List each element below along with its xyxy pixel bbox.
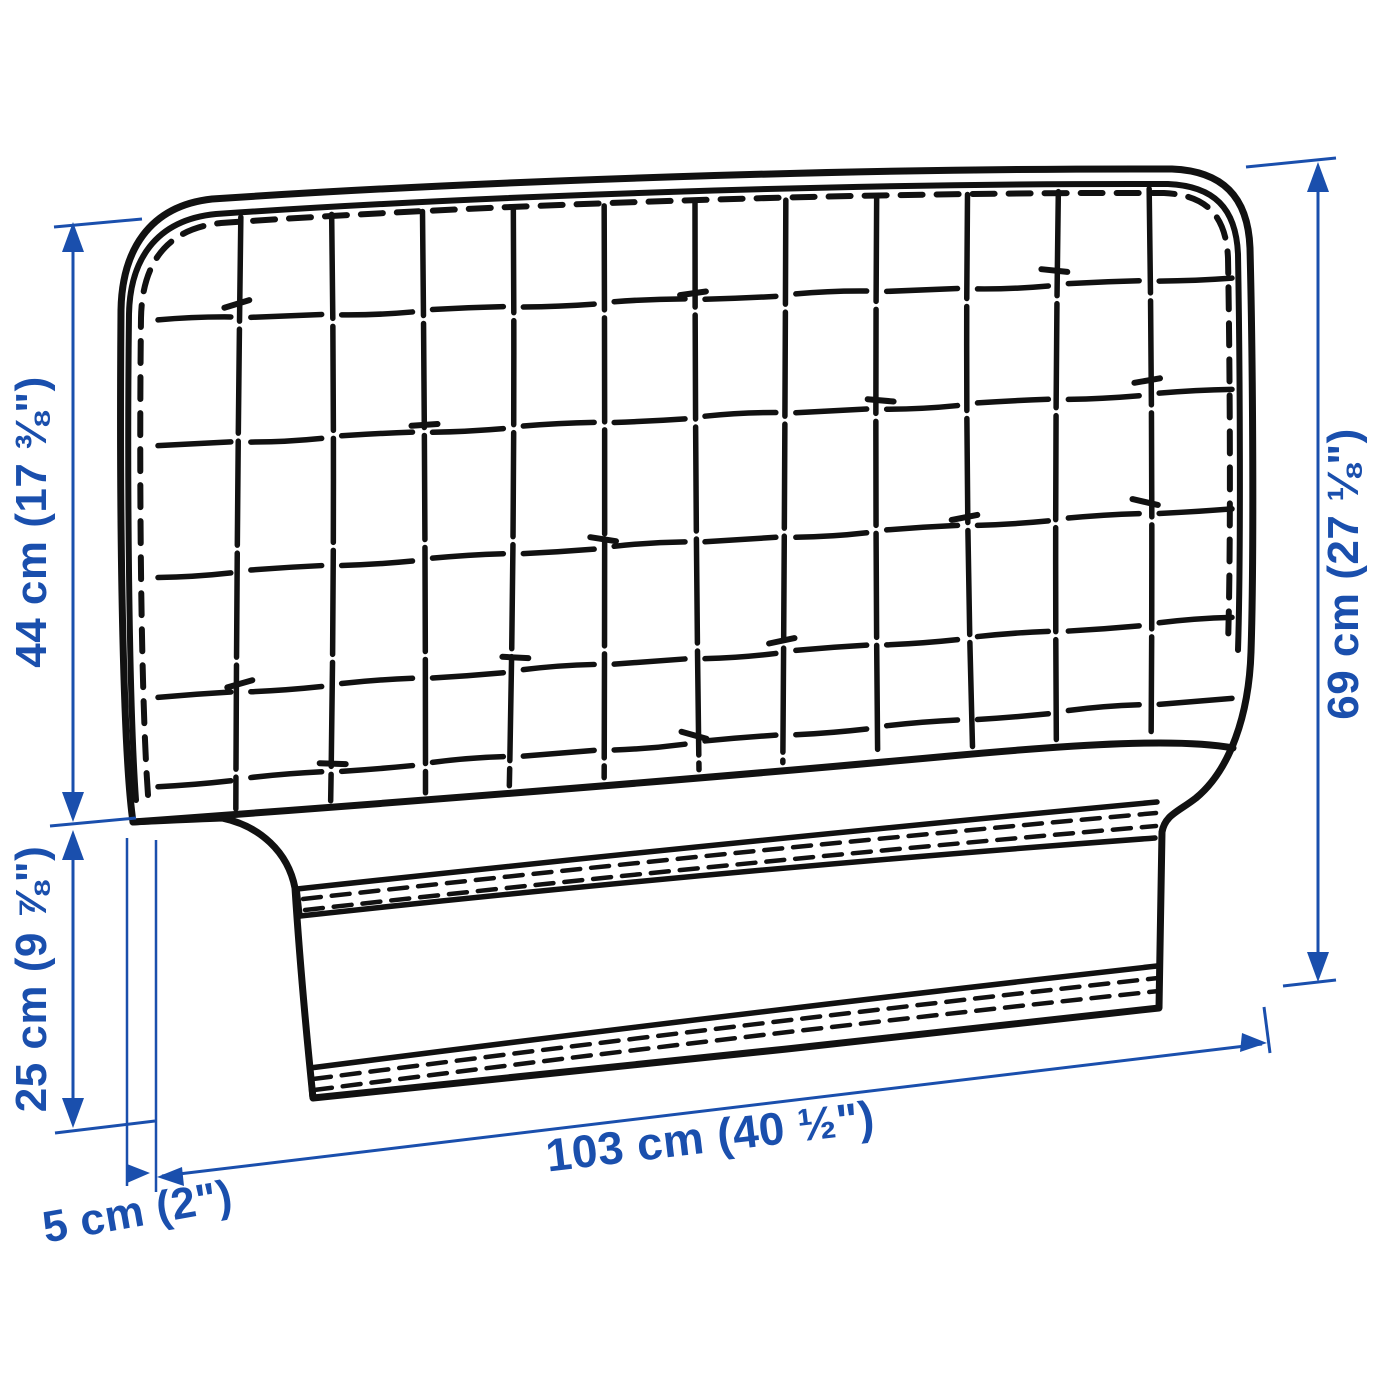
tick-line xyxy=(1264,1007,1270,1053)
quilt-grid-line xyxy=(887,640,958,645)
quilt-grid-line xyxy=(1068,514,1139,518)
quilt-grid-line xyxy=(978,631,1049,636)
tuft-mark xyxy=(224,300,249,308)
dimension-label-upper-left-height: 44 cm (17 ⅜") xyxy=(7,376,56,668)
arrow-head-right xyxy=(127,1164,150,1183)
quilt-grid-line xyxy=(342,432,413,436)
quilt-grid xyxy=(158,189,1232,809)
quilt-grid-line xyxy=(1159,509,1232,514)
rail-left-cap xyxy=(297,889,300,916)
quilt-grid-line xyxy=(978,714,1049,720)
rail-left-cap xyxy=(310,1068,312,1096)
headboard-dimension-diagram: 44 cm (17 ⅜") 25 cm (9 ⅞") 69 cm (27 ⅛")… xyxy=(0,0,1400,1400)
upper-stitched-rail xyxy=(297,802,1157,916)
quilt-grid-line xyxy=(251,772,322,778)
quilt-grid-line xyxy=(1149,189,1152,732)
rail-stitch-row xyxy=(305,826,1156,910)
quilt-grid-line xyxy=(604,206,605,778)
quilt-grid-line xyxy=(705,735,776,741)
tick-line xyxy=(55,1121,155,1133)
rail-stitch-row xyxy=(314,991,1159,1090)
tick-line xyxy=(1283,980,1336,986)
quilt-grid-line xyxy=(978,399,1049,403)
quilt-grid-line xyxy=(1068,396,1139,400)
quilt-grid-line xyxy=(433,554,504,558)
quilt-grid-line xyxy=(509,209,513,786)
headboard-illustration: 44 cm (17 ⅜") 25 cm (9 ⅞") 69 cm (27 ⅛")… xyxy=(0,0,1400,1400)
tick-line xyxy=(1246,158,1336,167)
lower-stitched-rail xyxy=(310,966,1159,1096)
headboard-silhouette xyxy=(121,169,1253,1098)
quilt-grid-line xyxy=(695,203,699,770)
arrow-head-right xyxy=(1240,1033,1267,1052)
arrow-head-down xyxy=(62,792,84,822)
tuft-mark xyxy=(502,657,528,658)
dimension-label-width: 103 cm (40 ½") xyxy=(543,1091,877,1182)
tuft-marks xyxy=(224,269,1160,764)
quilt-grid-line xyxy=(796,729,867,735)
quilt-grid-line xyxy=(796,645,867,650)
tuft-mark xyxy=(682,732,707,739)
dimension-25cm: 25 cm (9 ⅞") xyxy=(7,830,155,1133)
quilt-grid-line xyxy=(433,757,504,763)
quilt-grid-line xyxy=(251,566,322,570)
quilt-grid-line xyxy=(614,419,685,423)
arrow-head-down xyxy=(62,1098,84,1128)
tuft-mark xyxy=(680,292,706,296)
dimension-label-right-height: 69 cm (27 ⅛") xyxy=(1319,428,1368,720)
quilt-grid-line xyxy=(433,307,504,310)
arrow-head-up xyxy=(62,830,84,860)
quilt-grid-line xyxy=(433,429,504,433)
quilt-grid-line xyxy=(614,299,685,302)
quilt-grid-line xyxy=(331,214,334,800)
quilt-grid-line xyxy=(876,197,878,754)
quilt-grid-line xyxy=(783,200,786,762)
quilt-grid-line xyxy=(523,304,594,307)
quilt-grid-line xyxy=(705,413,776,417)
quilt-grid-line xyxy=(705,653,776,658)
arrow-head-up xyxy=(1307,162,1329,192)
tick-line xyxy=(54,219,142,227)
tuft-mark xyxy=(868,399,894,401)
quilt-grid-line xyxy=(1068,281,1139,284)
quilt-grid-line xyxy=(158,317,231,320)
headboard-outline xyxy=(121,169,1253,1098)
tick-line xyxy=(50,818,136,826)
tuft-mark xyxy=(769,638,794,643)
tuft-mark xyxy=(227,680,252,687)
tuft-mark xyxy=(412,424,438,426)
quilt-grid-line xyxy=(342,678,413,683)
quilt-grid-line xyxy=(887,289,958,292)
quilt-grid-line xyxy=(523,549,594,553)
tuft-mark xyxy=(1041,269,1067,272)
quilt-grid-line xyxy=(887,525,958,529)
quilt-grid-line xyxy=(523,750,594,756)
dimension-5cm: 5 cm (2") xyxy=(39,838,236,1252)
quilt-grid-line xyxy=(251,314,322,317)
tuft-mark xyxy=(320,763,346,764)
rail-stitch-row xyxy=(313,978,1158,1079)
quilt-grid-line xyxy=(1159,698,1232,704)
quilt-grid-line xyxy=(1159,617,1232,622)
quilt-grid-line xyxy=(978,286,1049,289)
quilt-grid-line xyxy=(967,195,973,747)
rail-stitch-row xyxy=(303,813,1156,899)
quilt-grid-line xyxy=(158,442,231,446)
quilt-grid-line xyxy=(158,692,231,697)
quilt-grid-line xyxy=(978,521,1049,525)
quilt-grid-line xyxy=(614,542,685,546)
dimension-label-depth: 5 cm (2") xyxy=(39,1171,236,1253)
quilt-grid-line xyxy=(158,573,231,578)
quilt-grid-line xyxy=(523,664,594,669)
tuft-mark xyxy=(590,537,616,541)
arrow-head-down xyxy=(1307,952,1329,982)
dimension-69cm: 69 cm (27 ⅛") xyxy=(1246,158,1368,986)
quilt-grid-line xyxy=(1068,626,1139,631)
quilt-grid-line xyxy=(158,781,231,787)
quilt-grid-line xyxy=(423,212,426,793)
quilt-grid-line xyxy=(251,687,322,692)
quilt-grid-line xyxy=(796,291,867,294)
quilt-grid-line xyxy=(523,422,594,426)
quilt-grid-line xyxy=(614,659,685,664)
quilt-grid-line xyxy=(796,409,867,413)
quilt-grid-line xyxy=(887,406,958,410)
quilt-grid-line xyxy=(705,537,776,541)
quilt-grid-line xyxy=(1068,705,1139,711)
quilt-grid-line xyxy=(1159,278,1232,281)
dimension-label-lower-left-height: 25 cm (9 ⅞") xyxy=(7,846,56,1113)
quilt-grid-line xyxy=(1159,389,1232,393)
quilt-grid-line xyxy=(887,720,958,726)
quilt-grid-line xyxy=(342,766,413,772)
quilt-grid-line xyxy=(342,561,413,565)
quilt-grid-line xyxy=(342,312,413,315)
tuft-mark xyxy=(952,515,978,520)
quilt-grid-line xyxy=(251,438,322,442)
quilt-grid-line xyxy=(433,673,504,678)
quilt-grid-line xyxy=(705,296,776,299)
tuft-mark xyxy=(1134,378,1160,383)
quilt-grid-line xyxy=(796,533,867,537)
quilt-grid-line xyxy=(614,744,685,750)
